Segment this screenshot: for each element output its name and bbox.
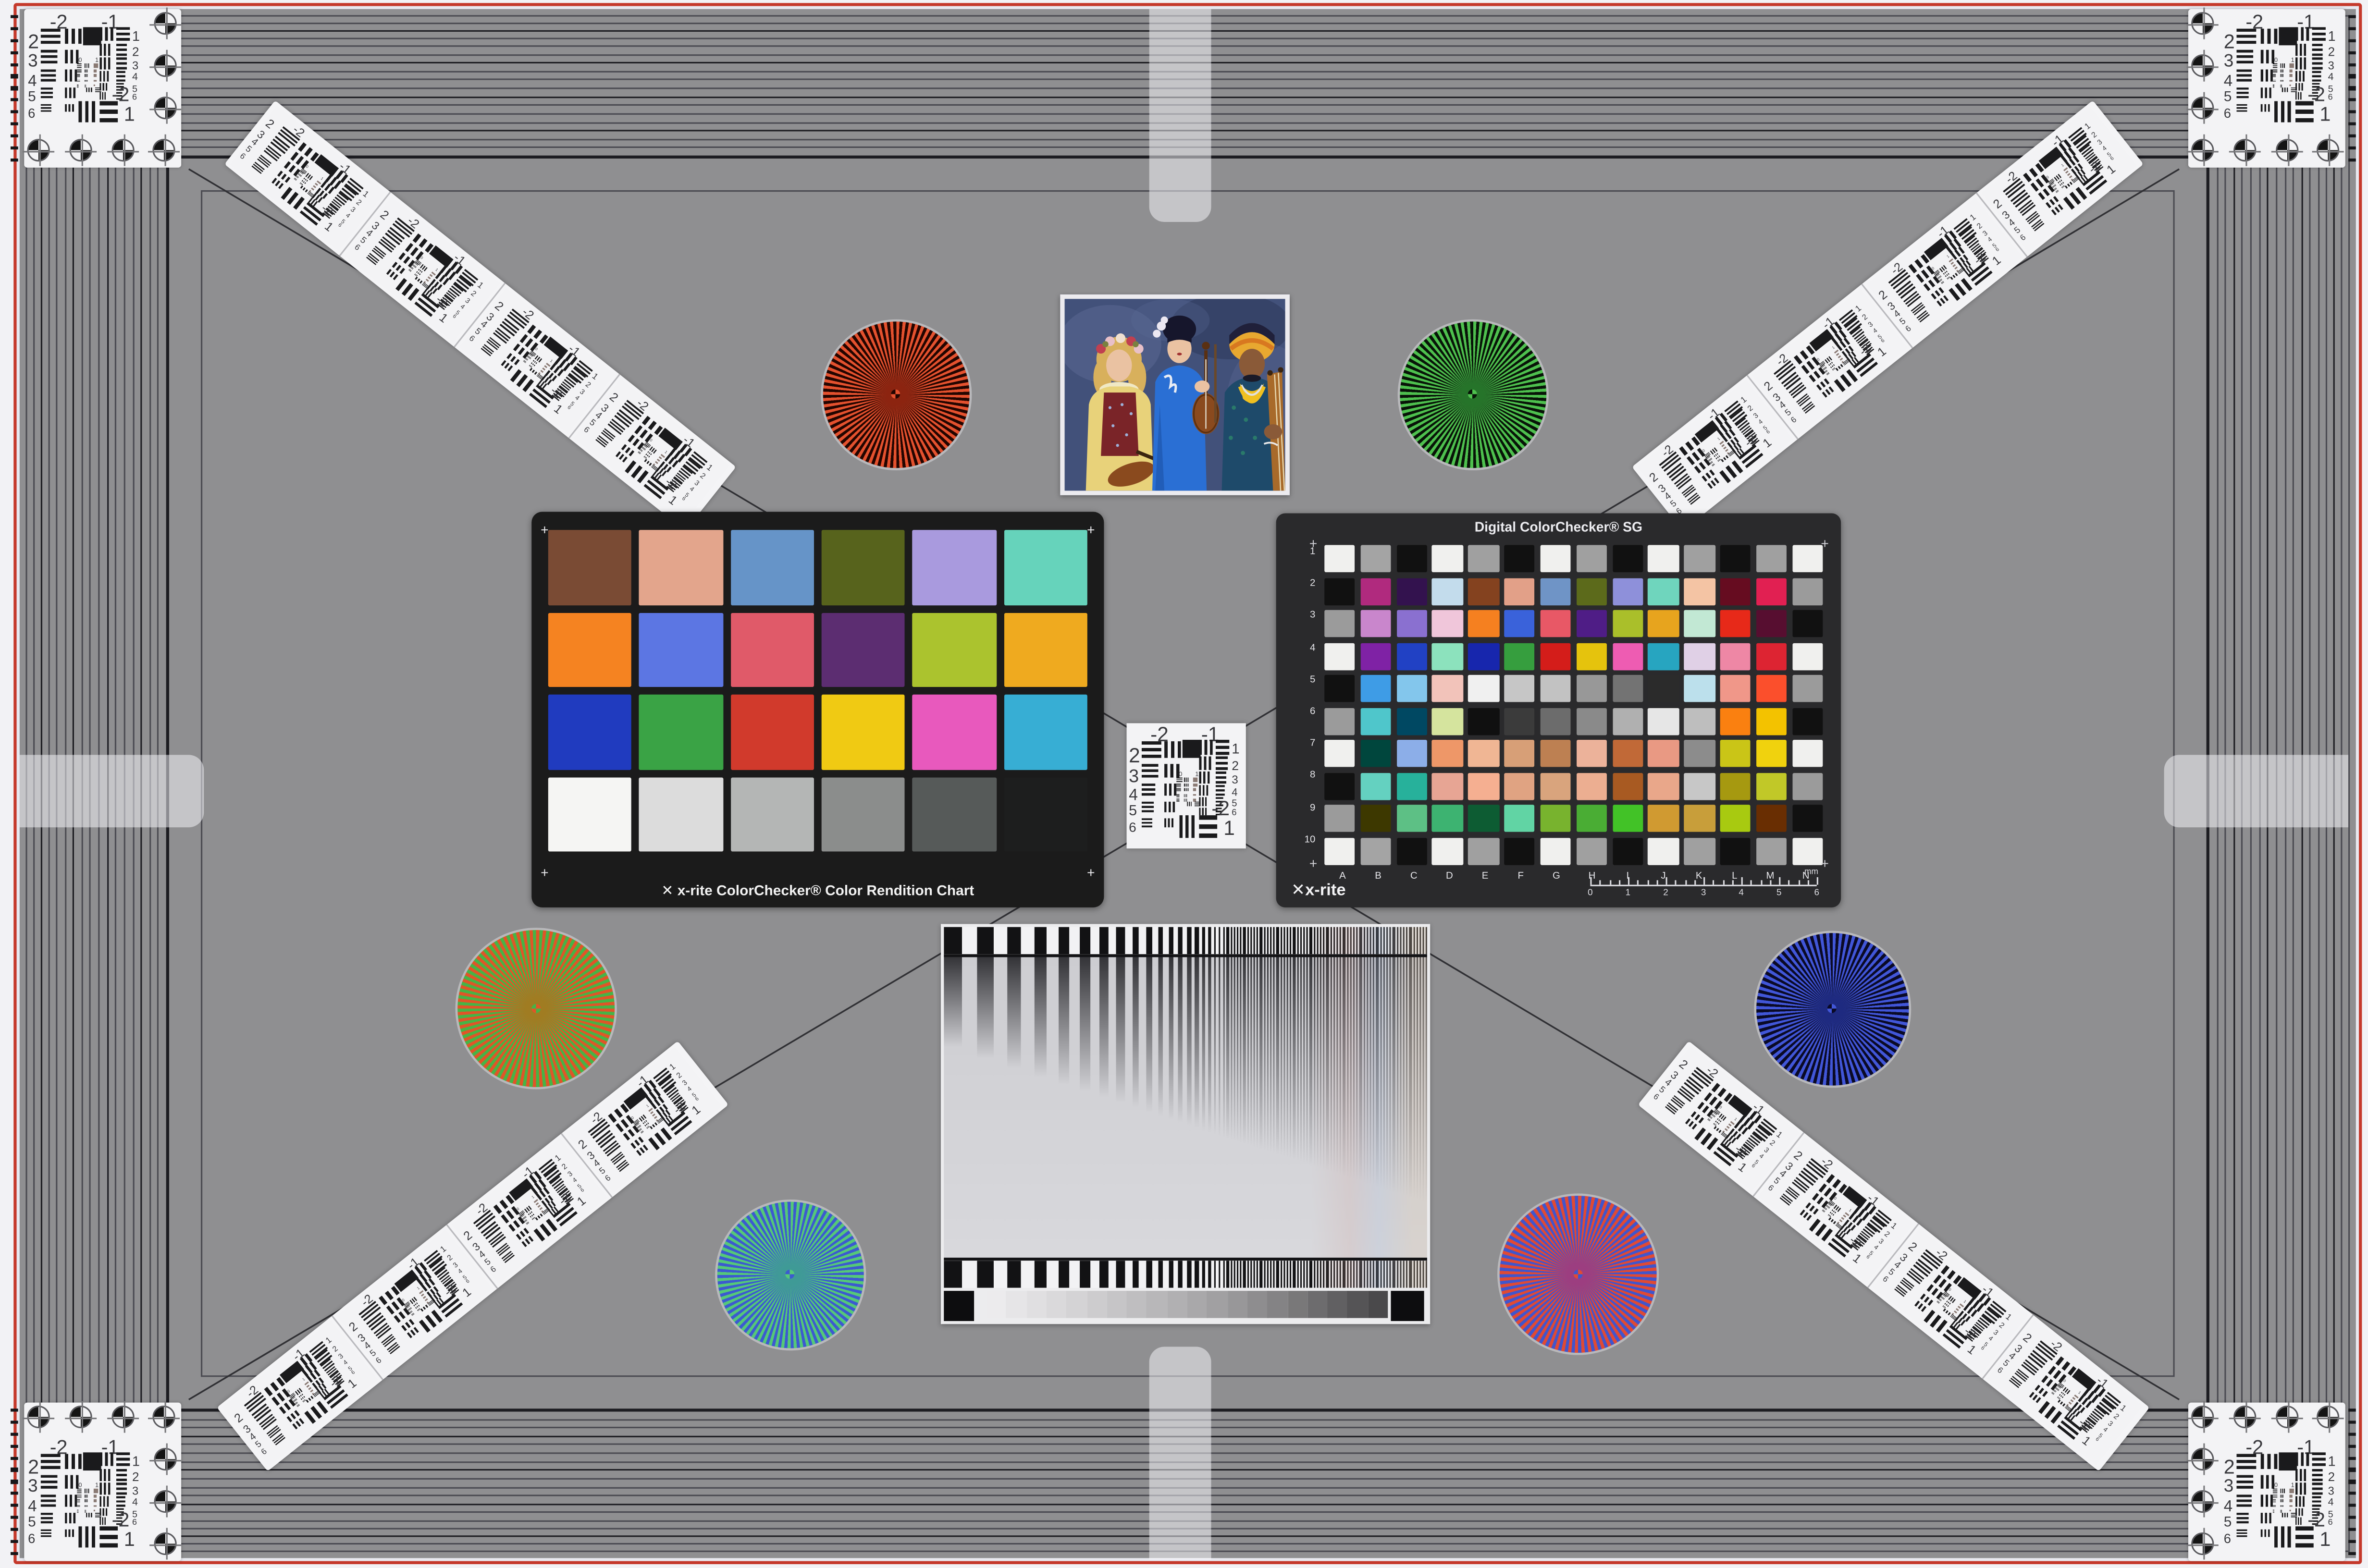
resolution-number: 6 [2020, 235, 2029, 244]
tri-bar-vertical [2065, 183, 2072, 189]
sg-color-patch [1324, 643, 1355, 670]
tri-bar-horizontal [1941, 282, 1944, 285]
sg-color-patch [1360, 740, 1391, 768]
resolution-number: 2 [28, 32, 39, 52]
tri-bar-horizontal [1821, 1210, 1825, 1213]
ruler-tick [1788, 880, 1790, 884]
tri-bar-horizontal [2272, 69, 2277, 73]
star-center-dot [1827, 1004, 1837, 1013]
sg-color-patch [1720, 708, 1751, 735]
tri-bar-horizontal [76, 74, 81, 77]
star-center-dot [1468, 390, 1477, 399]
resolution-number: 1 [2319, 1529, 2331, 1549]
resolution-number: 5 [2224, 91, 2232, 105]
sg-color-patch [1612, 643, 1643, 670]
sg-color-patch [1612, 675, 1643, 702]
tri-bar-vertical [84, 64, 89, 68]
tri-bar-horizontal [411, 1313, 414, 1317]
sg-color-patch [1360, 675, 1391, 702]
tri-bar-vertical [420, 1305, 428, 1312]
resolution-number: -2 [112, 1510, 130, 1530]
sg-color-patch [1576, 708, 1607, 735]
resolution-number: 5 [1129, 806, 1137, 821]
sg-color-patch [1720, 610, 1751, 637]
sg-color-patch [1360, 773, 1391, 800]
resolution-number: -2 [112, 85, 130, 104]
tri-bar-horizontal [1142, 819, 1153, 827]
resolution-number: 3 [28, 53, 38, 71]
sg-color-patch [1648, 545, 1679, 573]
registration-circle-icon [2191, 54, 2214, 77]
tri-bar-horizontal [2236, 1454, 2256, 1470]
sg-color-patch [1612, 610, 1643, 637]
tri-bar-vertical [2280, 1489, 2285, 1493]
tri-bar-vertical [1823, 386, 1834, 397]
micro-dot [1954, 267, 1958, 270]
tri-bar-vertical [1719, 460, 1742, 482]
resolution-number: 1 [461, 1286, 474, 1300]
micro-dot [1838, 1219, 1842, 1222]
tri-bar-horizontal [481, 344, 493, 356]
registration-circle-icon [2191, 12, 2214, 35]
gray-step [986, 1291, 1007, 1318]
micro-dot [310, 187, 314, 190]
corner-resolution-block-bottom-right: -2-12345612345601-21 [2188, 1403, 2345, 1561]
resolution-number: 1 [2328, 1455, 2336, 1469]
tri-bar-vertical [2282, 87, 2288, 92]
sg-column-label: J [1648, 871, 1678, 882]
resolution-number: 4 [2224, 1498, 2232, 1514]
tri-bar-horizontal [1142, 742, 1161, 758]
tri-bar-horizontal [657, 1117, 665, 1124]
tri-bar-horizontal [2272, 1510, 2275, 1512]
tri-bar-horizontal [366, 253, 379, 265]
sg-color-patch [1684, 708, 1715, 735]
corner-usaf-cell: -2-12345612345601-21 [25, 1436, 146, 1558]
tri-bar-vertical [1165, 819, 1174, 827]
resolution-number: 6 [237, 154, 246, 163]
brand-label: x-rite [1305, 882, 1346, 900]
resolution-number: 1 [346, 1378, 359, 1392]
sg-color-patch [1684, 805, 1715, 833]
tri-bar-horizontal [1728, 450, 1736, 457]
tri-bar-vertical [84, 1489, 89, 1493]
x-rite-logo-icon: ✕ [1291, 882, 1305, 900]
registration-circle-icon [70, 139, 92, 161]
brand-label: x-rite [678, 883, 716, 900]
sg-color-patch [1505, 773, 1535, 800]
sg-color-patch [1612, 545, 1643, 573]
tri-bar-horizontal [41, 70, 55, 82]
sg-color-patch [1720, 675, 1751, 702]
resolution-number: 6 [466, 336, 475, 345]
big-black-square [82, 26, 101, 45]
micro-dot [654, 1116, 657, 1119]
gray-step [1107, 1291, 1127, 1318]
sg-color-patch [1505, 740, 1535, 768]
tri-bar-vertical [1943, 1309, 1950, 1315]
sg-row-label: 5 [1294, 674, 1315, 685]
registration-circle-icon [2317, 1406, 2339, 1428]
registration-circle-icon [2191, 139, 2214, 161]
resolution-number: 4 [28, 1498, 37, 1514]
tri-bar-vertical [99, 1452, 112, 1466]
gray-step [1227, 1291, 1248, 1318]
resolution-number: 1 [2319, 104, 2331, 123]
registration-circle-icon [154, 1448, 177, 1470]
color-patch [730, 530, 814, 605]
registration-plus-icon: + [1309, 857, 1318, 871]
tri-bar-horizontal [1142, 784, 1156, 796]
tri-bar-horizontal [2272, 1489, 2278, 1493]
resolution-number: 4 [1129, 787, 1138, 804]
tri-bar-vertical [300, 186, 307, 193]
color-patch [548, 612, 632, 687]
sg-row-label: 7 [1294, 738, 1315, 749]
tri-bar-horizontal [2236, 1529, 2247, 1538]
tri-bar-horizontal [1215, 785, 1224, 795]
gray-step [1066, 1291, 1087, 1318]
sg-color-patch [1612, 740, 1643, 768]
tri-bar-horizontal [1215, 772, 1226, 783]
micro-dot [94, 1505, 96, 1507]
resolution-number: 6 [605, 1176, 614, 1185]
sg-color-patch [1648, 610, 1679, 637]
colorchecker-24-caption: ✕ x-rite ColorChecker® Color Rendition C… [531, 883, 1104, 900]
micro-dot [2289, 64, 2293, 68]
sg-color-patch [1505, 643, 1535, 670]
gray-step [1147, 1291, 1168, 1318]
micro-dot [2289, 69, 2293, 73]
resolution-number: 1 [551, 403, 564, 417]
resolution-number: 1 [1991, 255, 2004, 269]
tri-bar-vertical [99, 1507, 107, 1516]
tri-bar-horizontal [76, 69, 82, 73]
tri-bar-horizontal [386, 1342, 399, 1354]
registration-plus-icon: + [1087, 867, 1095, 880]
corner-resolution-block-bottom-left: -2-12345612345601-21 [24, 1403, 181, 1561]
sg-color-patch [1720, 545, 1751, 573]
sg-color-patch [1396, 577, 1427, 605]
tri-bar-vertical [278, 171, 292, 183]
registration-circle-icon [154, 1532, 177, 1555]
resolution-number: 2 [132, 1472, 139, 1484]
resolution-number: 3 [28, 1479, 38, 1496]
tri-bar-vertical [2280, 74, 2283, 77]
sg-color-patch [1720, 740, 1751, 768]
sg-color-patch [1505, 838, 1535, 865]
tri-bar-vertical [1200, 797, 1208, 806]
tri-bar-vertical [84, 80, 87, 82]
tri-bar-vertical [84, 1500, 87, 1503]
micro-dot [2289, 1510, 2291, 1512]
micro-dot [2289, 85, 2291, 87]
resolution-number: 6 [1865, 1254, 1871, 1261]
star-center-dot [531, 1004, 541, 1013]
tri-bar-vertical [1937, 295, 1949, 306]
tri-bar-vertical [2295, 83, 2303, 91]
sg-title: Digital ColorChecker® SG [1276, 519, 1841, 534]
gray-step [1047, 1291, 1067, 1318]
resolution-number: 1 [321, 221, 334, 235]
micro-dot [2289, 1500, 2292, 1503]
tri-bar-vertical [1165, 742, 1181, 758]
big-black-square [2278, 1452, 2297, 1470]
resolution-number: 4 [2224, 73, 2232, 89]
resolution-number: 6 [1880, 338, 1886, 344]
tri-bar-horizontal [2236, 1475, 2253, 1488]
resolution-number: 6 [337, 223, 343, 229]
micro-dot [1955, 1308, 1959, 1311]
micro-dot [425, 1299, 428, 1302]
tri-bar-horizontal [296, 1405, 300, 1408]
resolution-number: 1 [1735, 1162, 1748, 1176]
tri-bar-vertical [644, 459, 651, 466]
gray-step [1287, 1291, 1308, 1318]
tri-bar-horizontal [115, 71, 124, 81]
micro-dot [94, 1510, 96, 1512]
tri-bar-horizontal [2050, 1392, 2054, 1395]
sg-color-patch [1756, 577, 1787, 605]
registration-plus-icon: + [1821, 857, 1829, 871]
micro-dot [427, 276, 431, 280]
tri-bar-horizontal [1215, 757, 1227, 770]
resolution-number: 1 [1964, 1344, 1977, 1358]
color-patch [913, 695, 996, 770]
tri-bar-horizontal [76, 1505, 80, 1507]
gray-step [1127, 1291, 1147, 1318]
tri-bar-vertical [407, 1327, 419, 1337]
tri-bar-horizontal [2311, 1496, 2320, 1506]
resolution-number: 0 [1179, 771, 1182, 777]
tri-bar-vertical [1184, 778, 1189, 782]
resolution-number: 6 [695, 1097, 701, 1103]
tri-bar-vertical [2260, 50, 2274, 63]
registration-circle-icon [2191, 97, 2214, 119]
sg-color-patch [1612, 773, 1643, 800]
edge-comb-ticks [11, 1409, 21, 1555]
sg-color-patch [1576, 675, 1607, 702]
sg-color-patch [1432, 675, 1463, 702]
tri-bar-vertical [2035, 1384, 2049, 1397]
tri-bar-horizontal [115, 1496, 124, 1506]
gray-step [1307, 1291, 1328, 1318]
micro-dot [2069, 176, 2072, 179]
micro-dot [542, 367, 545, 371]
tri-bar-vertical [2280, 64, 2285, 68]
tri-bar-vertical [1200, 740, 1212, 755]
sg-color-patch [1324, 545, 1355, 573]
sg-color-patch [1505, 610, 1535, 637]
tri-bar-vertical [84, 1494, 88, 1498]
resolution-number: 4 [2328, 1499, 2334, 1510]
sg-color-patch [1720, 643, 1751, 670]
tri-bar-horizontal [76, 1494, 82, 1498]
micro-dot [425, 279, 429, 282]
color-patch [913, 777, 996, 852]
resolution-number: 3 [2224, 1479, 2234, 1496]
resolution-number: 1 [691, 1104, 703, 1118]
registration-circle-icon [27, 1406, 50, 1428]
resolution-number: 2 [28, 1457, 39, 1477]
sg-color-patch [1396, 675, 1427, 702]
tri-bar-vertical [507, 353, 521, 365]
resolution-number: 6 [1765, 1186, 1774, 1195]
sg-color-patch [1505, 805, 1535, 833]
sg-color-patch [1792, 610, 1823, 637]
micro-dot [2070, 1399, 2073, 1403]
tri-bar-horizontal [1916, 310, 1929, 322]
color-patch [822, 777, 905, 852]
resolution-number: 6 [566, 405, 572, 411]
micro-dot [94, 69, 97, 73]
tri-bar-vertical [64, 88, 75, 98]
tri-bar-horizontal [1176, 799, 1179, 801]
tri-bar-horizontal [522, 360, 526, 363]
star-red-blue [1500, 1196, 1657, 1353]
sg-column-label: D [1434, 871, 1465, 882]
sg-color-patch [1432, 577, 1463, 605]
color-patch [639, 530, 723, 605]
tri-bar-horizontal [428, 1299, 435, 1306]
moire-tint-overlay [944, 1261, 1427, 1288]
resolution-number: 6 [376, 1358, 384, 1367]
registration-circle-icon [112, 1406, 135, 1428]
tri-bar-vertical [1200, 772, 1210, 783]
tri-bar-vertical [1184, 784, 1188, 787]
resolution-number: 3 [2224, 53, 2234, 71]
sg-column-label: H [1577, 871, 1607, 882]
sg-color-patch [1468, 805, 1499, 833]
sg-color-patch [1792, 675, 1823, 702]
resolution-number: 1 [2291, 1482, 2294, 1489]
sg-color-patch [1396, 610, 1427, 637]
tri-bar-vertical [1806, 1202, 1820, 1214]
frequency-bar-row-top [944, 927, 1427, 955]
color-patch [913, 612, 996, 687]
tri-bar-vertical [2295, 1483, 2306, 1494]
grayscale-step-wedge [944, 1291, 1427, 1321]
resolution-number: 1 [132, 30, 140, 44]
color-patch [639, 612, 723, 687]
resolution-number: 4 [132, 74, 138, 85]
star-center-dot [1574, 1270, 1583, 1279]
resolution-number: 1 [475, 282, 484, 292]
sg-color-patch [1720, 577, 1751, 605]
tri-bar-vertical [64, 104, 74, 112]
resolution-number: 1 [1888, 1223, 1897, 1232]
micro-dot [1724, 1128, 1727, 1131]
sg-color-patch [1756, 643, 1787, 670]
registration-plus-icon: + [541, 867, 549, 880]
registration-circle-icon [152, 139, 175, 161]
tri-bar-horizontal [2311, 1469, 2323, 1482]
resolution-number: 6 [1129, 822, 1136, 835]
tri-bar-vertical [1801, 1210, 1812, 1221]
tri-bar-vertical [293, 1418, 304, 1429]
tri-bar-vertical [648, 1127, 671, 1150]
resolution-number: 2 [1129, 745, 1140, 765]
tri-bar-vertical [1721, 456, 1728, 463]
resolution-number: 0 [78, 57, 82, 63]
color-patch [822, 612, 905, 687]
sg-color-patch [1792, 545, 1823, 573]
tri-bar-horizontal [2236, 50, 2253, 63]
tri-bar-vertical [2063, 187, 2086, 209]
tri-bar-vertical [2260, 1529, 2269, 1538]
resolution-number: 1 [589, 373, 598, 383]
resolution-number: 5 [28, 91, 36, 105]
sg-color-patch [1684, 545, 1715, 573]
sg-color-patch [1540, 805, 1571, 833]
sg-color-patch [1648, 643, 1679, 670]
tri-bar-horizontal [2272, 1505, 2276, 1507]
tri-bar-vertical [2274, 101, 2291, 122]
colorchecker-24-chart: + + + + ✕ x-rite ColorChecker® Color Ren… [531, 512, 1104, 907]
sg-color-patch [1468, 773, 1499, 800]
sg-color-patch [1360, 545, 1391, 573]
tri-bar-horizontal [41, 50, 58, 63]
tri-bar-vertical [396, 278, 419, 300]
sg-color-patch [1324, 805, 1355, 833]
micro-dot [94, 85, 96, 87]
tri-bar-horizontal [1215, 740, 1229, 755]
tri-bar-horizontal [115, 1483, 126, 1494]
sg-color-patch [1324, 740, 1355, 768]
sg-color-patch [1505, 708, 1535, 735]
registration-circle-icon [2191, 1490, 2214, 1513]
sg-color-patch [1720, 773, 1751, 800]
sg-column-label: G [1542, 871, 1572, 882]
tri-bar-vertical [2295, 43, 2306, 56]
resolution-number: 6 [2224, 1532, 2231, 1545]
resolution-number: 1 [1850, 1252, 1863, 1266]
tri-bar-horizontal [76, 1489, 82, 1493]
tri-bar-vertical [2295, 1496, 2304, 1506]
resolution-number: 6 [580, 427, 589, 436]
resolution-number: -2 [2307, 1510, 2325, 1530]
ruler-number: 0 [1588, 889, 1593, 898]
star-red-green [457, 930, 615, 1087]
corner-usaf-cell: -2-12345612345601-21 [2221, 1436, 2342, 1558]
tri-bar-vertical [84, 69, 88, 73]
tri-bar-vertical [78, 101, 95, 122]
tri-bar-horizontal [2311, 1483, 2322, 1494]
resolution-number: -2 [1211, 799, 1230, 820]
sg-color-patch [1432, 545, 1463, 573]
tri-bar-vertical [64, 1495, 77, 1507]
micro-dot [656, 459, 660, 462]
resolution-number: 6 [261, 1449, 270, 1458]
registration-plus-icon: + [1087, 524, 1095, 538]
tri-bar-vertical [393, 261, 406, 274]
tri-bar-horizontal [41, 1513, 53, 1522]
tri-bar-vertical [2295, 1518, 2302, 1525]
registration-circle-icon [2233, 1406, 2256, 1428]
gray-step [1026, 1291, 1047, 1318]
sg-color-patch [1792, 740, 1823, 768]
resolution-number: 2 [2328, 1472, 2335, 1484]
sg-color-patch [1792, 805, 1823, 833]
crop-tab-bottom [1149, 1347, 1211, 1559]
resolution-number: 6 [1880, 1276, 1888, 1286]
tri-bar-vertical [306, 1396, 313, 1403]
sg-color-patch [1324, 577, 1355, 605]
tri-bar-vertical [64, 1513, 75, 1522]
tri-bar-horizontal [501, 1251, 514, 1263]
tri-bar-horizontal [115, 26, 129, 41]
sg-color-patch [1684, 740, 1715, 768]
